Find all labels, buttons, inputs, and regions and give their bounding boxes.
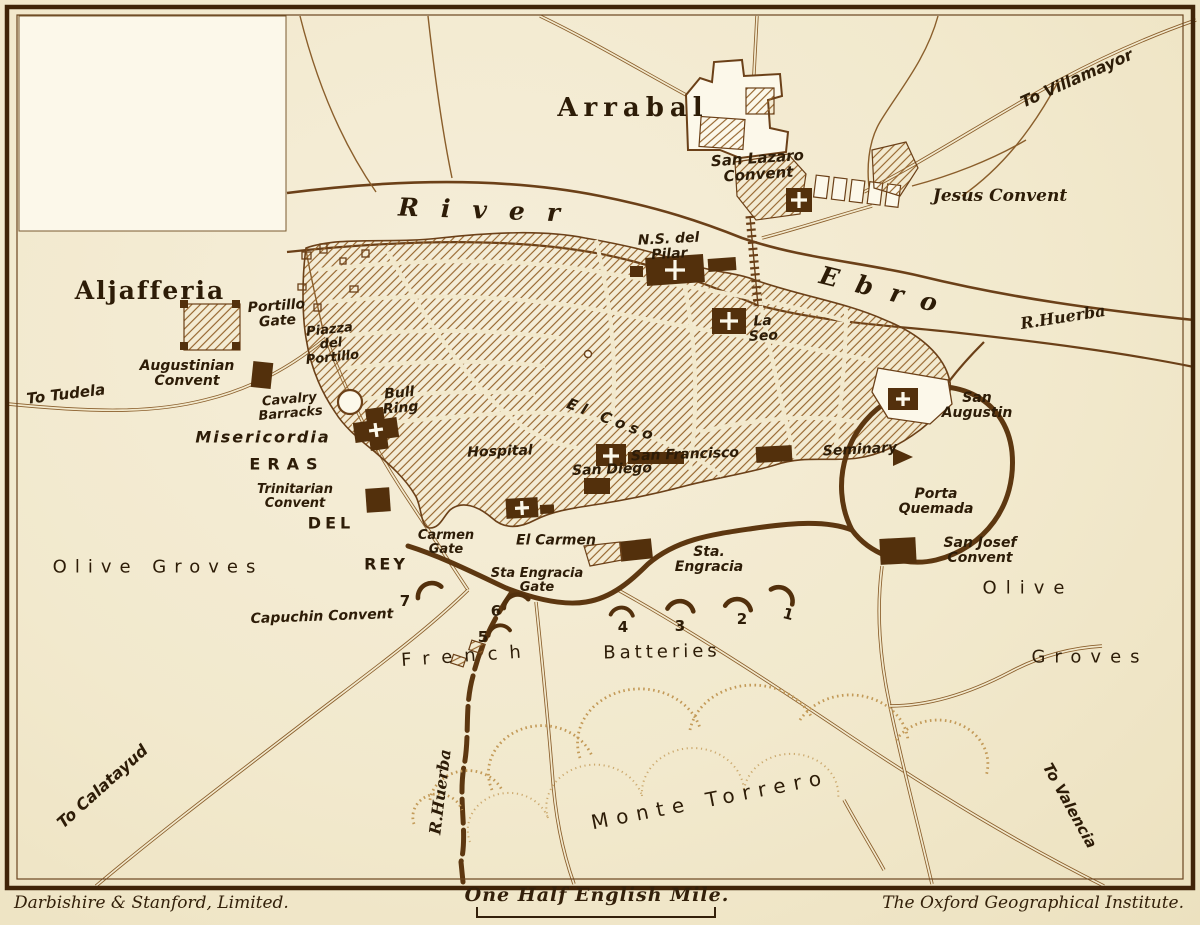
label-battery-7: 7 [400, 594, 410, 610]
label-portillo-gate: Portillo Gate [247, 297, 306, 331]
label-trinitarian-convent: Trinitarian Convent [257, 483, 333, 511]
label-river-word: River [398, 195, 583, 228]
cavalry-barracks-icon [251, 361, 274, 389]
label-del: DEL [308, 516, 354, 533]
label-battery-6: 6 [491, 604, 501, 620]
map-page: ArrabalRiverEbroSan Lazaro ConventTo Vil… [0, 0, 1200, 925]
scale-bar-bracket [477, 907, 715, 917]
jesus-convent-icon [872, 142, 918, 196]
publisher-credit-left: Darbishire & Stanford, Limited. [14, 893, 289, 913]
label-olive-groves-west: Olive Groves [53, 557, 264, 576]
label-rey: REY [364, 557, 408, 574]
label-augustinian-convent: Augustinian Convent [140, 359, 235, 389]
trinitarian-convent-icon [365, 487, 391, 513]
label-hospital: Hospital [467, 443, 533, 460]
san-diego-icon [584, 478, 610, 494]
label-piazza-del-portillo: Piazza del Portillo [302, 321, 359, 368]
label-battery-5: 5 [478, 630, 488, 646]
label-batteries: Batteries [603, 641, 721, 662]
label-misericordia: Misericordia [195, 430, 330, 447]
label-groves-east: Groves [1031, 647, 1148, 666]
bull-ring-icon [338, 390, 362, 414]
san-josef-convent-icon [879, 537, 916, 565]
label-cavalry-barracks: Cavalry Barracks [257, 390, 324, 423]
label-aljafferia: Aljafferia [75, 278, 225, 305]
label-eras: ERAS [249, 457, 324, 474]
aljafferia-castle [180, 300, 240, 350]
label-san-lazaro-convent: San Lazaro Convent [710, 148, 805, 186]
label-sta-engracia: Sta. Engracia [675, 545, 743, 575]
label-ns-del-pilar: N.S. del Pilar [637, 231, 700, 264]
inset-box [19, 16, 286, 231]
label-jesus-convent: Jesus Convent [933, 187, 1067, 205]
publisher-credit-right: The Oxford Geographical Institute. [882, 893, 1184, 913]
label-sta-engracia-gate: Sta Engracia Gate [491, 567, 583, 595]
label-la-seo: La Seo [748, 313, 779, 344]
label-porta-quemada: Porta Quemada [899, 487, 974, 517]
label-el-carmen: El Carmen [516, 534, 596, 549]
label-arrabal: Arrabal [557, 95, 708, 123]
plaza-marker [585, 351, 592, 358]
label-battery-3: 3 [675, 619, 685, 635]
label-olive-east: Olive [983, 578, 1074, 597]
scale-bar-label: One Half English Mile. [465, 884, 730, 906]
church-la-seo [712, 308, 746, 334]
label-battery-4: 4 [618, 620, 628, 636]
label-san-augustin: San Augustin [942, 391, 1013, 421]
label-carmen-gate: Carmen Gate [418, 529, 474, 557]
label-bull-ring: Bull Ring [381, 385, 419, 418]
label-san-josef-convent: San Josef Convent [943, 536, 1016, 566]
label-battery-2: 2 [737, 612, 747, 628]
